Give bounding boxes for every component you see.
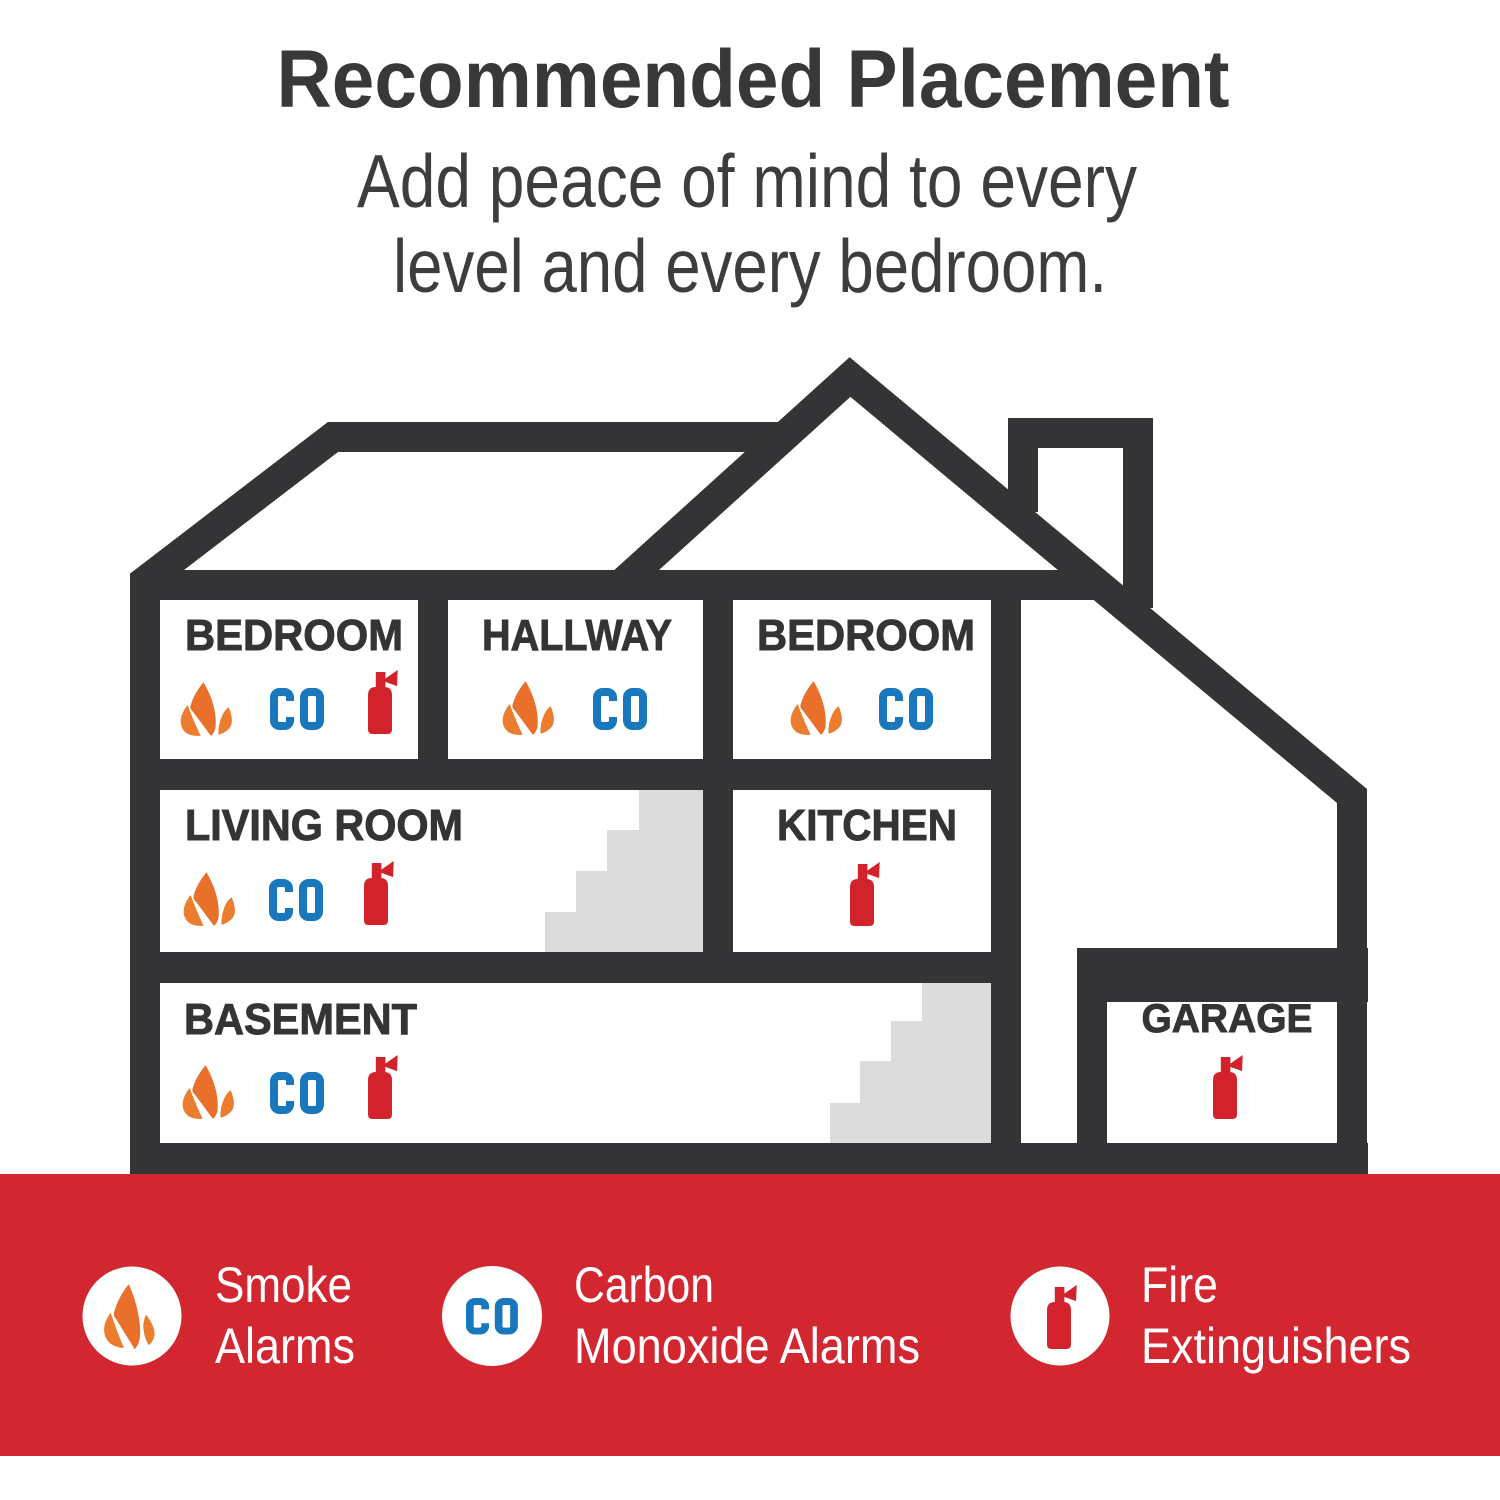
svg-text:Carbon: Carbon (574, 1257, 714, 1313)
svg-text:Extinguishers: Extinguishers (1141, 1318, 1411, 1374)
svg-text:BASEMENT: BASEMENT (184, 995, 417, 1044)
svg-text:Alarms: Alarms (215, 1318, 355, 1374)
svg-text:Recommended Placement: Recommended Placement (277, 34, 1230, 125)
svg-text:HALLWAY: HALLWAY (482, 611, 672, 660)
svg-text:GARAGE: GARAGE (1142, 997, 1313, 1041)
svg-text:Fire: Fire (1141, 1257, 1218, 1313)
svg-text:BEDROOM: BEDROOM (185, 611, 403, 660)
svg-text:Monoxide Alarms: Monoxide Alarms (574, 1318, 920, 1374)
svg-text:KITCHEN: KITCHEN (777, 801, 957, 850)
svg-text:Smoke: Smoke (215, 1257, 352, 1313)
svg-text:BEDROOM: BEDROOM (757, 611, 975, 660)
svg-text:LIVING ROOM: LIVING ROOM (185, 801, 463, 850)
svg-text:level and every bedroom.: level and every bedroom. (393, 224, 1107, 308)
svg-text:Add peace of mind to every: Add peace of mind to every (357, 139, 1137, 223)
